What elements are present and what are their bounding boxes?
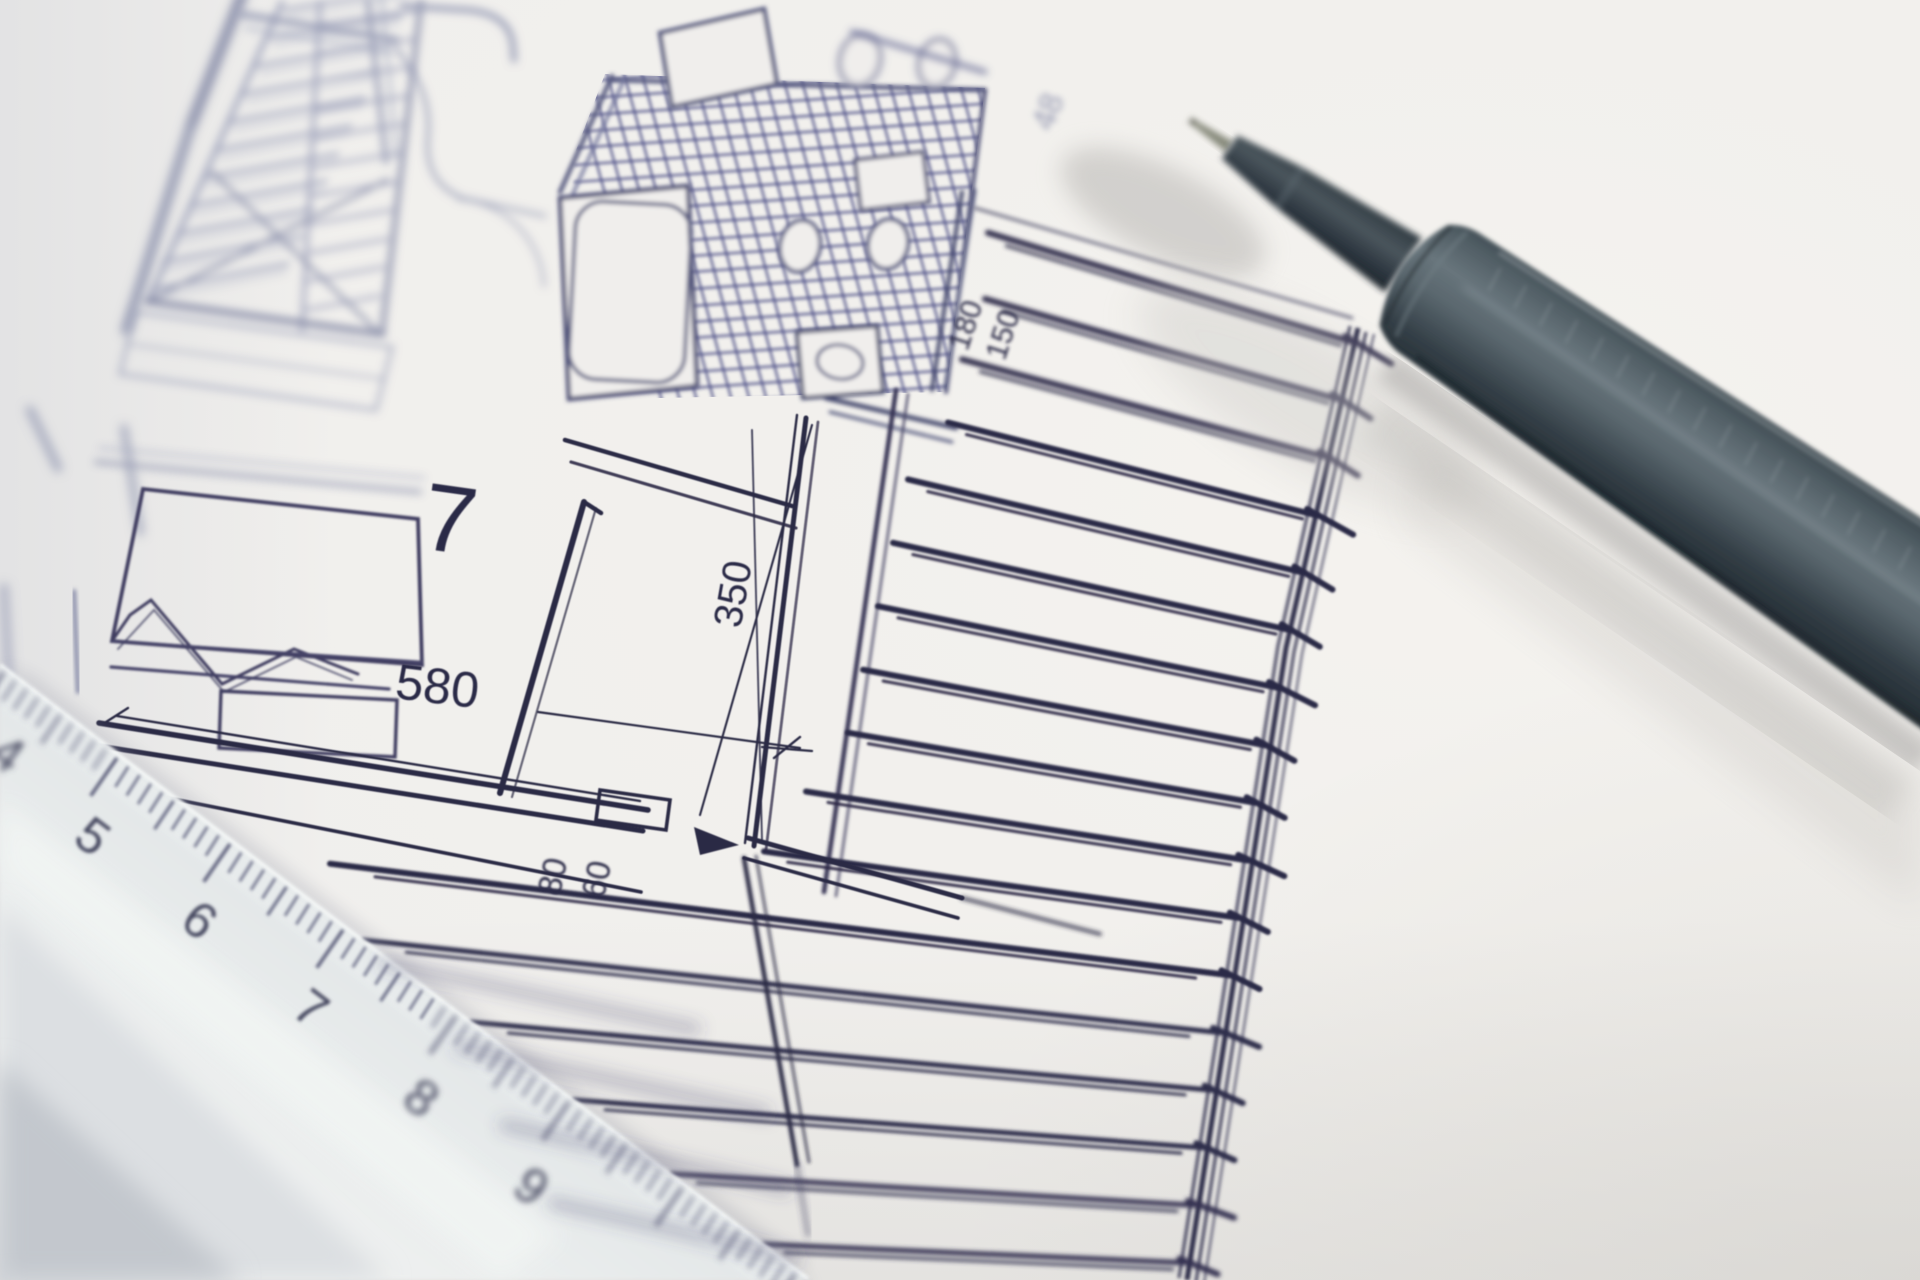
svg-text:80: 80 <box>530 854 574 898</box>
svg-text:60: 60 <box>574 857 618 901</box>
svg-text:580: 580 <box>393 653 483 719</box>
